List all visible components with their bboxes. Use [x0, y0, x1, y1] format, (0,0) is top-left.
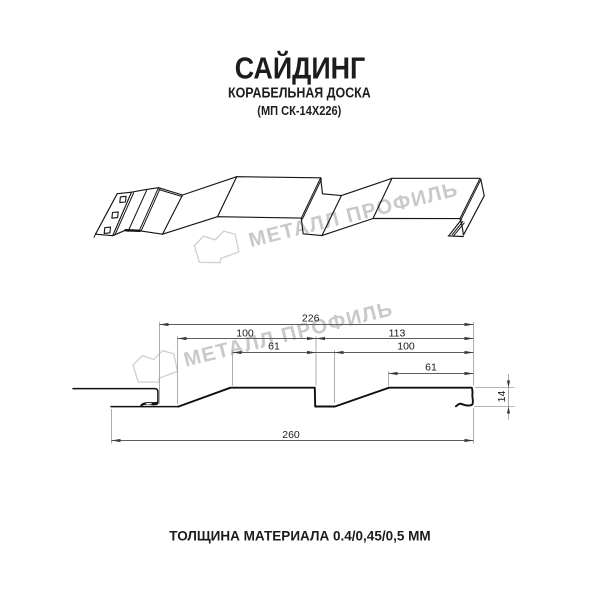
svg-text:САЙДИНГ: САЙДИНГ — [235, 49, 366, 85]
svg-text:ТОЛЩИНА МАТЕРИАЛА 0.4/0,45/0,5: ТОЛЩИНА МАТЕРИАЛА 0.4/0,45/0,5 ММ — [169, 528, 430, 544]
svg-text:113: 113 — [389, 327, 406, 339]
svg-text:КОРАБЕЛЬНАЯ ДОСКА: КОРАБЕЛЬНАЯ ДОСКА — [228, 86, 371, 102]
svg-text:(МП СК-14Х226): (МП СК-14Х226) — [257, 104, 341, 118]
svg-text:14: 14 — [496, 391, 508, 403]
svg-text:100: 100 — [397, 341, 415, 353]
svg-text:260: 260 — [282, 429, 300, 441]
svg-text:61: 61 — [268, 341, 280, 353]
svg-text:61: 61 — [425, 362, 437, 374]
svg-text:100: 100 — [236, 327, 254, 339]
svg-text:226: 226 — [302, 312, 320, 324]
